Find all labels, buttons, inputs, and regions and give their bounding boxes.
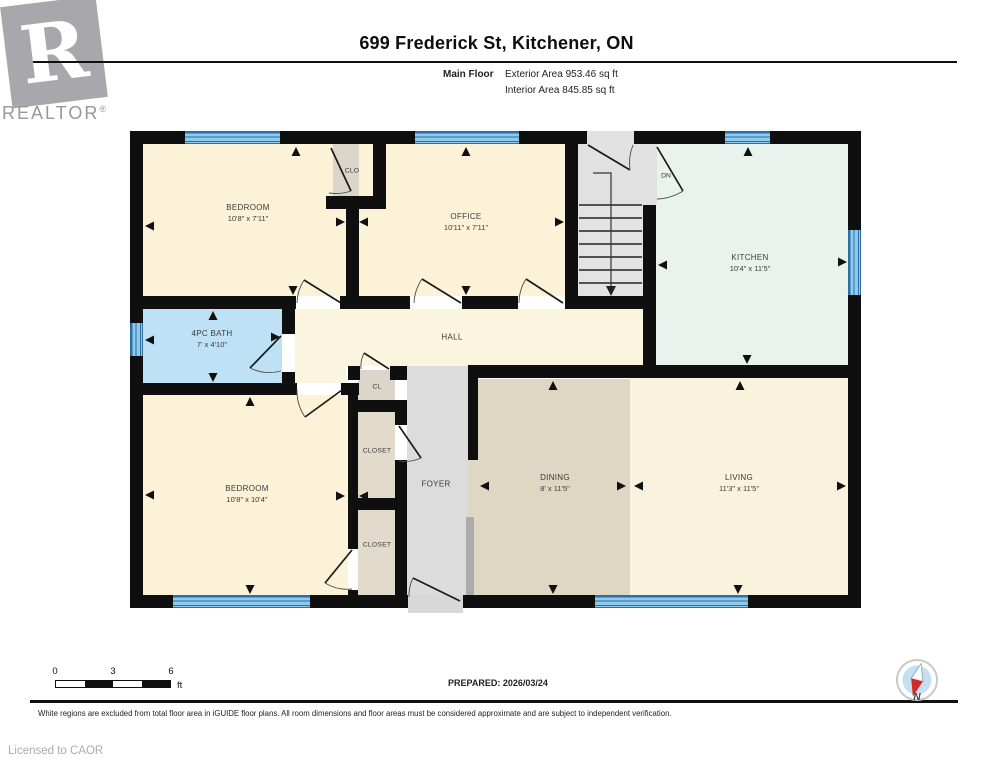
footer-divider	[30, 700, 958, 703]
floor-overlay	[578, 144, 657, 205]
room-label-cl: CL	[372, 382, 381, 392]
window	[848, 230, 861, 295]
window	[725, 131, 770, 144]
scale-ticks: 0 3 6	[55, 666, 171, 678]
window	[415, 131, 519, 144]
wall-segment	[395, 460, 407, 595]
room-name: BEDROOM	[225, 484, 268, 494]
floor-overlay	[587, 131, 634, 144]
scale-tick-0: 0	[52, 666, 57, 677]
room-label-bedroom-1: BEDROOM10'8" x 7'11"	[226, 203, 269, 223]
label-dn: DN	[661, 173, 671, 180]
floor-overlay	[466, 517, 474, 595]
room-name: CLO	[345, 166, 360, 176]
window	[595, 595, 748, 608]
wall-segment	[468, 365, 861, 378]
window	[130, 323, 143, 356]
room-name: LIVING	[719, 473, 759, 483]
license-text: Licensed to CAOR	[8, 745, 103, 757]
room-name: DINING	[540, 473, 570, 483]
wall-segment	[130, 296, 296, 309]
room-name: CLOSET	[363, 540, 391, 550]
room-label-hall: HALL	[441, 332, 462, 342]
room-label-bath: 4PC BATH7' x 4'10"	[192, 329, 233, 349]
room-label-office: OFFICE10'11" x 7'11"	[444, 212, 488, 232]
room-name: BEDROOM	[226, 203, 269, 213]
window	[185, 131, 280, 144]
room-name: KITCHEN	[730, 253, 771, 263]
room-closet-lower	[358, 510, 395, 595]
room-dimensions: 10'4" x 11'5"	[730, 264, 771, 274]
wall-segment	[348, 366, 360, 380]
room-dimensions: 10'11" x 7'11"	[444, 223, 488, 233]
wall-segment	[565, 144, 578, 309]
room-hall	[295, 309, 643, 366]
room-dimensions: 11'3" x 11'5"	[719, 484, 759, 494]
wall-segment	[462, 296, 518, 309]
wall-segment	[468, 365, 478, 460]
floor-plan: BEDROOM10'8" x 7'11"CLOOFFICE10'11" x 7'…	[0, 0, 993, 768]
wall-segment	[348, 590, 358, 608]
room-name: OFFICE	[444, 212, 488, 222]
room-dimensions: 7' x 4'10"	[192, 340, 233, 350]
room-label-closet-lower: CLOSET	[363, 540, 391, 550]
scale-unit: ft	[177, 680, 182, 691]
scale-tick-3: 3	[110, 666, 115, 677]
room-dimensions: 10'8" x 7'11"	[226, 214, 269, 224]
room-hall-nook	[295, 366, 346, 383]
wall-segment	[340, 296, 359, 309]
room-label-foyer: FOYER	[421, 479, 450, 489]
wall-segment	[130, 383, 297, 395]
room-dimensions: 8' x 11'5"	[540, 484, 570, 494]
wall-segment	[348, 400, 407, 412]
wall-segment	[643, 205, 656, 378]
wall-segment	[359, 296, 410, 309]
floor-overlay	[578, 205, 643, 296]
scale-bar: 0 3 6 ft	[55, 666, 171, 688]
room-dimensions: 10'8" x 10'4"	[225, 495, 268, 505]
room-label-dining: DINING8' x 11'5"	[540, 473, 570, 493]
wall-segment	[390, 366, 407, 380]
compass-north-label: N	[894, 692, 940, 703]
scale-tick-6: 6	[168, 666, 173, 677]
scale-strip	[55, 680, 171, 688]
room-name: CLOSET	[363, 446, 391, 456]
room-label-clo: CLO	[345, 166, 360, 176]
room-label-living: LIVING11'3" x 11'5"	[719, 473, 759, 493]
room-label-kitchen: KITCHEN10'4" x 11'5"	[730, 253, 771, 273]
prepared-date: PREPARED: 2026/03/24	[448, 678, 548, 688]
room-name: CL	[372, 382, 381, 392]
room-name: 4PC BATH	[192, 329, 233, 339]
wall-segment	[346, 196, 359, 309]
wall-segment	[282, 296, 295, 334]
disclaimer-text: White regions are excluded from total fl…	[38, 709, 948, 718]
room-label-closet-upper: CLOSET	[363, 446, 391, 456]
floor-overlay	[408, 595, 463, 613]
room-label-bedroom-2: BEDROOM10'8" x 10'4"	[225, 484, 268, 504]
wall-segment	[373, 144, 386, 209]
room-name: FOYER	[421, 479, 450, 489]
window	[173, 595, 310, 608]
wall-segment	[130, 131, 143, 608]
room-name: HALL	[441, 332, 462, 342]
wall-segment	[395, 412, 407, 425]
